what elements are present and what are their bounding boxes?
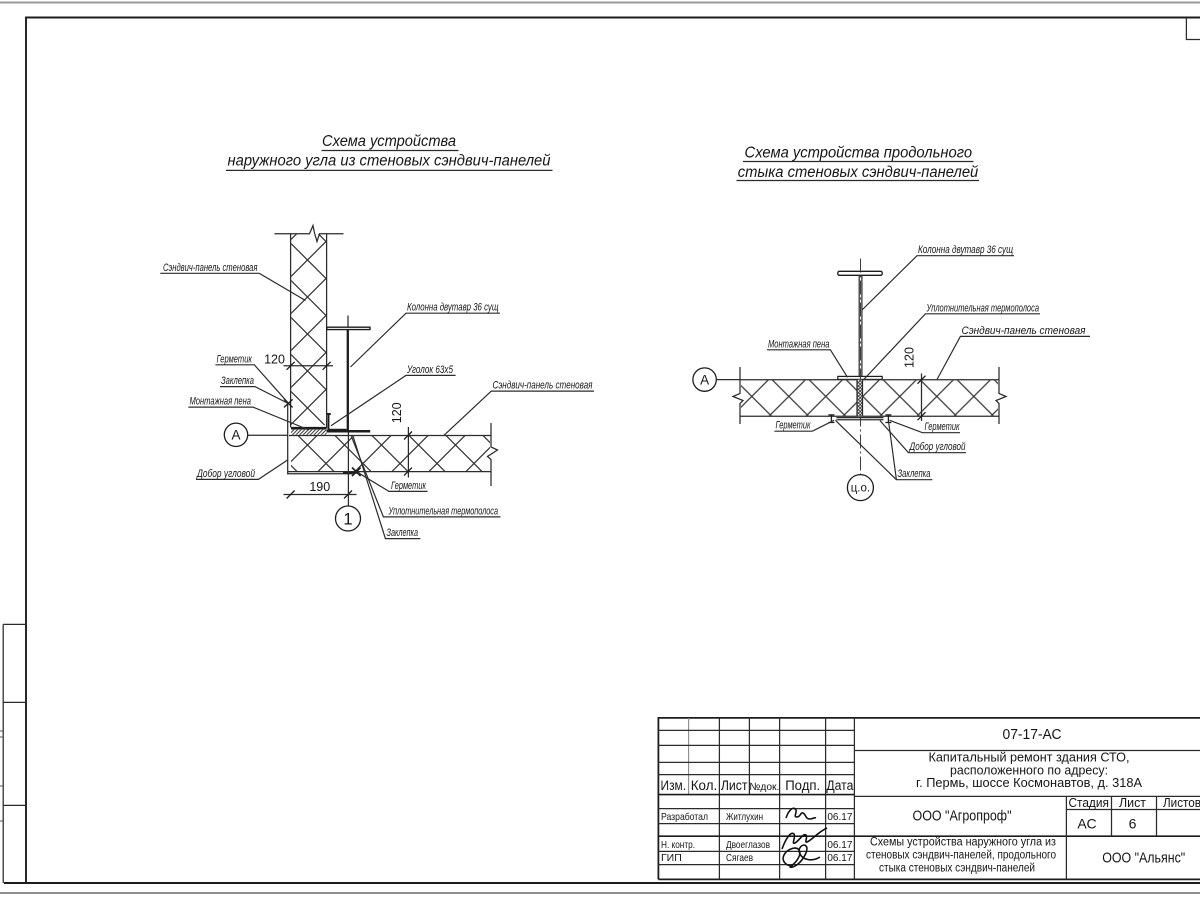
svg-text:Сягаев: Сягаев <box>726 852 753 864</box>
svg-text:120: 120 <box>903 347 917 368</box>
svg-text:Схема устройства: Схема устройства <box>322 133 456 150</box>
svg-text:Двоеглазов: Двоеглазов <box>726 839 770 851</box>
svg-text:АС: АС <box>1077 816 1096 832</box>
svg-text:1: 1 <box>343 511 352 529</box>
svg-text:№док.: №док. <box>749 781 779 793</box>
svg-text:Монтажная пена: Монтажная пена <box>190 396 252 408</box>
svg-text:стыка стеновых сэндвич-панелей: стыка стеновых сэндвич-панелей <box>738 164 979 181</box>
svg-text:Разработал: Разработал <box>661 811 708 823</box>
svg-text:Стадия: Стадия <box>1068 795 1109 810</box>
svg-text:Подп.: Подп. <box>785 778 820 793</box>
svg-text:Сэндвич-панель стеновая: Сэндвич-панель стеновая <box>493 380 593 392</box>
svg-text:Уплотнительная термополоса: Уплотнительная термополоса <box>926 302 1039 314</box>
svg-text:Житлухин: Житлухин <box>726 811 763 823</box>
svg-text:Заклепка: Заклепка <box>221 375 254 387</box>
svg-text:Уголок 63х5: Уголок 63х5 <box>406 364 453 376</box>
svg-text:г. Пермь, шоссе Космонавтов, д: г. Пермь, шоссе Космонавтов, д. 318А <box>916 775 1142 790</box>
svg-text:120: 120 <box>390 402 404 423</box>
svg-text:ООО "Агропроф": ООО "Агропроф" <box>913 808 1012 825</box>
svg-text:Заклепка: Заклепка <box>898 468 931 480</box>
svg-text:Добор угловой: Добор угловой <box>195 468 255 480</box>
svg-text:Колонна двутавр 36 сущ: Колонна двутавр 36 сущ <box>918 244 1013 256</box>
svg-text:Заклепка: Заклепка <box>387 527 419 539</box>
svg-text:Дата: Дата <box>826 778 853 793</box>
svg-text:Схема устройства продольного: Схема устройства продольного <box>745 145 973 162</box>
svg-text:наружного угла из стеновых сэн: наружного угла из стеновых сэндвич-панел… <box>228 153 551 170</box>
svg-text:стыка стеновых сэндвич-панелей: стыка стеновых сэндвич-панелей <box>879 863 1035 875</box>
svg-text:Монтажная пена: Монтажная пена <box>768 338 830 350</box>
svg-text:Лист: Лист <box>1119 795 1146 810</box>
svg-text:Лист: Лист <box>721 778 748 793</box>
svg-text:Сэндвич-панель стеновая: Сэндвич-панель стеновая <box>962 325 1086 337</box>
svg-text:Кол.: Кол. <box>691 778 718 793</box>
svg-text:Листов: Листов <box>1163 795 1200 810</box>
svg-text:06.17: 06.17 <box>827 840 852 851</box>
svg-text:Н. контр.: Н. контр. <box>661 839 695 851</box>
svg-text:ц.о.: ц.о. <box>851 483 870 495</box>
svg-text:А: А <box>700 372 709 387</box>
svg-text:120: 120 <box>264 353 285 367</box>
svg-text:Уплотнительная термополоса: Уплотнительная термополоса <box>388 505 498 517</box>
svg-text:Сэндвич-панель стеновая: Сэндвич-панель стеновая <box>163 262 258 274</box>
svg-text:06.17: 06.17 <box>827 812 852 823</box>
svg-text:Колонна двутавр 36 сущ: Колонна двутавр 36 сущ <box>407 302 499 314</box>
svg-text:Герметик: Герметик <box>776 420 812 432</box>
svg-text:Добор угловой: Добор угловой <box>908 441 965 453</box>
svg-text:А: А <box>231 428 240 443</box>
svg-text:Схемы устройства наружного угл: Схемы устройства наружного угла из <box>870 837 1056 849</box>
svg-text:6: 6 <box>1129 816 1137 832</box>
svg-text:стеновых сэндвич-панелей, прод: стеновых сэндвич-панелей, продольного <box>866 850 1056 862</box>
svg-text:ГИП: ГИП <box>661 852 682 864</box>
svg-text:Герметик: Герметик <box>217 353 253 365</box>
svg-text:07-17-АС: 07-17-АС <box>1003 727 1062 743</box>
svg-text:Герметик: Герметик <box>925 421 961 433</box>
svg-text:190: 190 <box>309 480 330 494</box>
svg-text:Изм.: Изм. <box>661 778 687 793</box>
svg-text:Герметик: Герметик <box>391 480 427 492</box>
svg-text:06.17: 06.17 <box>827 853 852 864</box>
svg-text:ООО "Альянс": ООО "Альянс" <box>1102 850 1185 867</box>
